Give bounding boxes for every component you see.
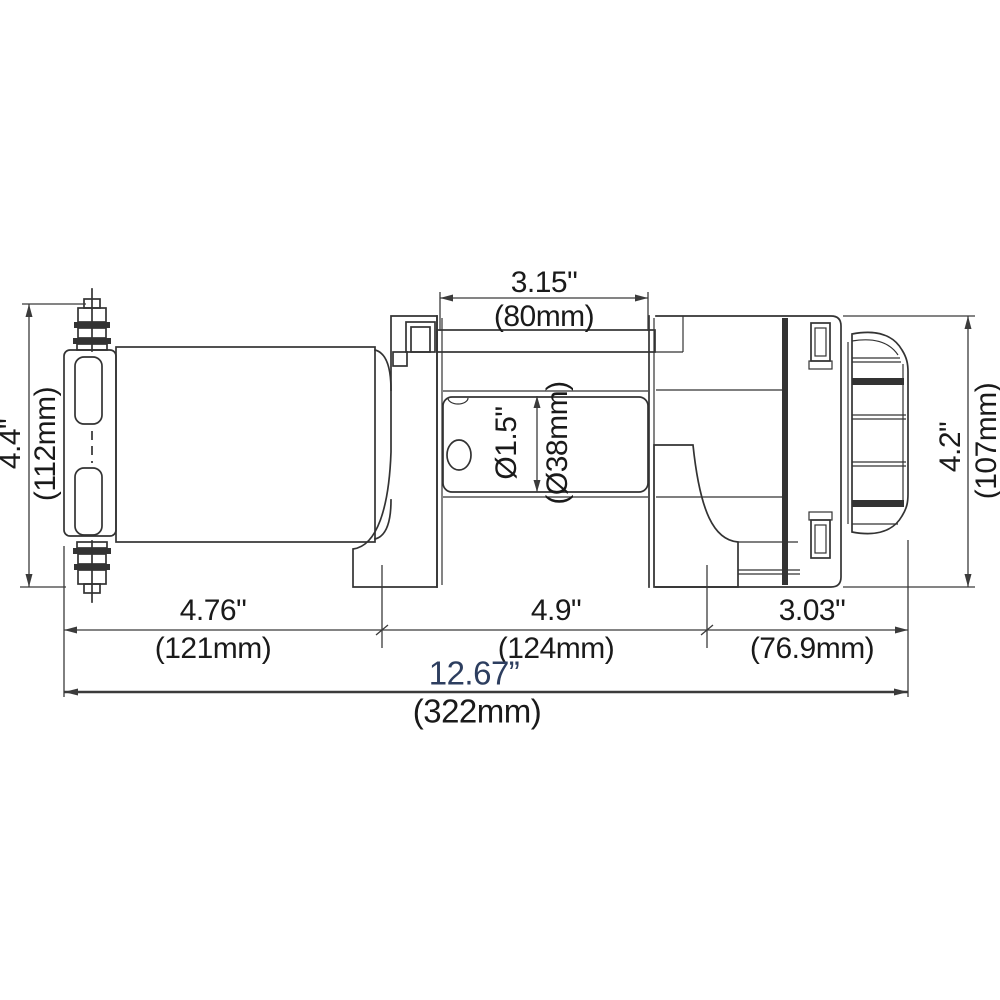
motor-end-cap bbox=[64, 350, 116, 536]
dim-motor-section-mm: (121mm) bbox=[155, 634, 272, 664]
clutch-knob bbox=[848, 332, 908, 533]
dim-left-height-in: 4.4" bbox=[0, 419, 26, 469]
dim-drum-width-mm: (80mm) bbox=[494, 302, 594, 332]
tie-bar bbox=[437, 330, 655, 352]
motor-fillet-top bbox=[375, 350, 391, 390]
dim-drum-section-in: 4.9" bbox=[531, 596, 581, 626]
terminal-bottom bbox=[73, 541, 111, 602]
dim-right-height-in: 4.2" bbox=[936, 422, 966, 472]
right-bracket bbox=[654, 445, 800, 587]
dim-right-height-mm: (107mm) bbox=[972, 383, 1000, 500]
motor-fillet-bottom bbox=[375, 500, 391, 539]
drum-hole bbox=[447, 440, 471, 470]
dim-left-height-mm: (112mm) bbox=[31, 387, 61, 501]
rope-notch bbox=[448, 398, 468, 404]
dim-overall-length-in: 12.67” bbox=[429, 657, 520, 690]
dim-gear-section-mm: (76.9mm) bbox=[750, 634, 874, 664]
winch-dimension-diagram: 3.15" (80mm) 4.4" (112mm) 4.2" (107mm) Ø… bbox=[0, 0, 1000, 1000]
gearbox-housing bbox=[654, 316, 841, 587]
left-bracket bbox=[353, 316, 437, 587]
motor-body bbox=[116, 347, 375, 542]
dim-drum-width-in: 3.15" bbox=[511, 268, 578, 298]
winch-line-drawing bbox=[0, 0, 1000, 1000]
housing-seam bbox=[782, 318, 788, 585]
dim-drum-diameter-mm: (Ø38mm) bbox=[543, 381, 573, 504]
dim-overall-length-mm: (322mm) bbox=[413, 695, 542, 728]
motor-assembly bbox=[64, 289, 391, 602]
dim-motor-section-in: 4.76" bbox=[180, 596, 247, 626]
dim-gear-section-in: 3.03" bbox=[779, 596, 846, 626]
dim-drum-diameter-in: Ø1.5" bbox=[492, 406, 522, 479]
terminal-top bbox=[73, 289, 111, 351]
